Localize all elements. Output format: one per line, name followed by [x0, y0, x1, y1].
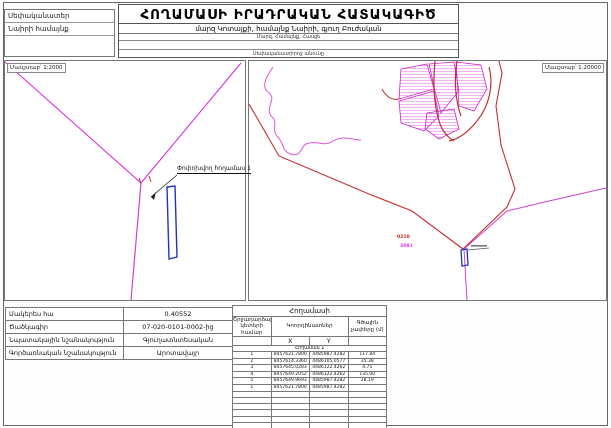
coord-row: 28457614.33604486105.057735.38 — [233, 358, 387, 365]
coord-cell-y: 4485987.4282 — [310, 352, 349, 359]
info-table: Մակերես հա0.40552Ծածկագիր07-020-0101-000… — [5, 307, 233, 360]
owner-value: Նաիրի համայնք — [5, 23, 114, 36]
coord-cell-n — [233, 423, 272, 428]
coord-cell-n: 5 — [233, 378, 272, 385]
col-coordinates: Կոորդինատներ — [271, 317, 348, 337]
coord-row: 18457621.78004485987.4282 — [233, 384, 387, 391]
coord-cell-len — [348, 384, 387, 391]
coord-cell-len: 135.00 — [348, 371, 387, 378]
coord-cell-y — [310, 423, 349, 428]
coord-cell-x — [271, 423, 310, 428]
plot-label-left: Փոփոխվող հողամաս 1 — [177, 165, 251, 174]
info-label: Նպատակային նշանակություն — [6, 334, 124, 347]
owner-label: Սեփականատեր — [5, 10, 114, 23]
coord-cell-n: 1 — [233, 352, 272, 359]
title-box: ՀՈՂԱՄԱՍԻ ԻՐԱԴՐԱԿԱՆ ՀԱՏԱԿԱԳԻԾ մարզ Կոտայք… — [118, 4, 459, 58]
coord-cell-len: 28.19 — [348, 378, 387, 385]
scale-label-left: Մասշտաբ՝ 1:2000 — [7, 63, 66, 73]
coord-cell-y: 4485987.4282 — [310, 384, 349, 391]
document-page: Սեփականատեր Նաիրի համայնք ՀՈՂԱՄԱՍԻ ԻՐԱԴՐ… — [0, 0, 611, 428]
empty-row — [233, 423, 387, 428]
info-table-rows: Մակերես հա0.40552Ծածկագիր07-020-0101-000… — [6, 308, 233, 360]
coord-cell-n: 3 — [233, 365, 272, 372]
plot-outline-left — [167, 186, 177, 259]
col-point-number: Շրջադարձային կետերի համար — [233, 317, 272, 337]
info-value: Գյուղատնտեսական — [124, 334, 233, 347]
coord-cell-y: 4485987.4282 — [310, 378, 349, 385]
parcel-number-red: 0210 — [397, 235, 410, 240]
info-value: 07-020-0101-0002-ից — [124, 321, 233, 334]
owner-name-field — [119, 41, 458, 50]
coords-table-title: Հողամասի — [233, 306, 387, 317]
owner-box: Սեփականատեր Նաիրի համայնք — [4, 9, 115, 57]
coord-cell-y: 4486122.4262 — [310, 365, 349, 372]
owner-empty-cell — [5, 36, 114, 55]
info-value: Արոտավայր — [124, 347, 233, 360]
info-label: Գործառնական նշանակություն — [6, 347, 124, 360]
address-caption: Մարզ, Համայնք, Հասցե — [119, 34, 458, 41]
y-header: Y — [310, 337, 349, 346]
coords-table-rows: 18457621.78004485987.4282117.8428457614.… — [233, 352, 387, 428]
coord-row: 38457645.02834486122.42624.75 — [233, 365, 387, 372]
coord-cell-x: 8457649.9693 — [271, 378, 310, 385]
info-row: Մակերես հա0.40552 — [6, 308, 233, 321]
map-left-drawing — [5, 61, 245, 300]
coord-cell-x: 8457621.7800 — [271, 352, 310, 359]
owner-name-caption: Սեփականատիրոջ անունը — [119, 50, 458, 58]
coord-row: 58457649.96934485987.428228.19 — [233, 378, 387, 385]
coord-row: 48457649.20524486122.4262135.00 — [233, 371, 387, 378]
page-title: ՀՈՂԱՄԱՍԻ ԻՐԱԴՐԱԿԱՆ ՀԱՏԱԿԱԳԻԾ — [119, 5, 458, 24]
coord-cell-y: 4486122.4262 — [310, 371, 349, 378]
coords-table: Հողամասի Շրջադարձային կետերի համար Կոորդ… — [232, 305, 387, 428]
scale-label-right: Մասշտաբ՝ 1:20000 — [542, 63, 604, 73]
plot-leader-line-right — [468, 248, 489, 250]
info-row: Գործառնական նշանակությունԱրոտավայր — [6, 347, 233, 360]
map-panel-right: Մասշտաբ՝ 1:20000 — [248, 60, 607, 301]
micro-label-smudge — [471, 245, 487, 247]
map-right-drawing — [249, 61, 606, 300]
parcel-cluster — [382, 61, 491, 141]
coord-cell-len: 35.38 — [348, 358, 387, 365]
info-label: Մակերես հա — [6, 308, 124, 321]
coord-cell-len: 117.84 — [348, 352, 387, 359]
coord-cell-y: 4486105.0577 — [310, 358, 349, 365]
parcel-number-magenta: 3081 — [400, 244, 413, 249]
coord-cell-len: 4.75 — [348, 365, 387, 372]
len-spacer — [348, 337, 387, 346]
coord-cell-n: 1 — [233, 384, 272, 391]
xy-spacer — [233, 337, 272, 346]
map-panel-left: Մասշտաբ՝ 1:2000 Փոփոխվող հողամաս 1 — [4, 60, 246, 301]
info-label: Ծածկագիր — [6, 321, 124, 334]
address-line: մարզ Կոտայքի, համայնք Նաիրի, գյուղ Բուժա… — [119, 24, 458, 34]
coord-cell-n: 4 — [233, 371, 272, 378]
coord-cell-x: 8457649.2052 — [271, 371, 310, 378]
info-value: 0.40552 — [124, 308, 233, 321]
coord-row: 18457621.78004485987.4282117.84 — [233, 352, 387, 359]
coord-cell-len — [348, 423, 387, 428]
x-header: X — [271, 337, 310, 346]
col-lengths: Գծային չափերը (մ) — [348, 317, 387, 337]
info-row: Նպատակային նշանակությունԳյուղատնտեսական — [6, 334, 233, 347]
coord-cell-x: 8457614.3360 — [271, 358, 310, 365]
coord-cell-x: 8457645.0283 — [271, 365, 310, 372]
info-row: Ծածկագիր07-020-0101-0002-ից — [6, 321, 233, 334]
coord-cell-x: 8457621.7800 — [271, 384, 310, 391]
coord-cell-n: 2 — [233, 358, 272, 365]
